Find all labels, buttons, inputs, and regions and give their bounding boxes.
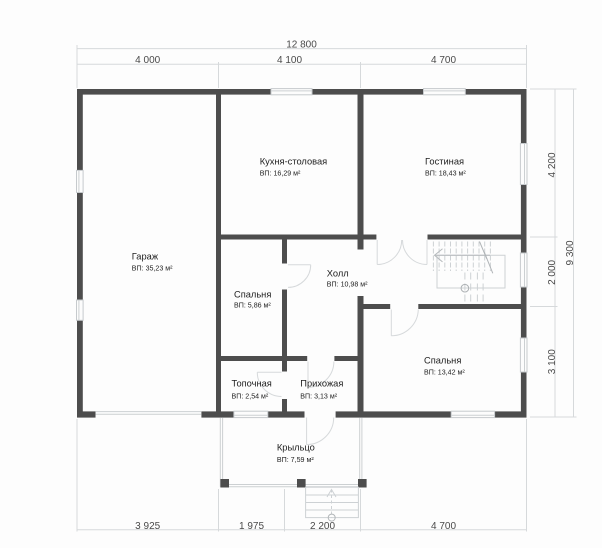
svg-text:1 975: 1 975 — [239, 521, 264, 532]
svg-text:ВП: 18,43 м²: ВП: 18,43 м² — [425, 170, 466, 178]
svg-text:3 100: 3 100 — [547, 349, 558, 374]
svg-text:Крыльцо: Крыльцо — [277, 442, 315, 452]
svg-text:4 100: 4 100 — [277, 55, 302, 66]
svg-text:ВП: 7,59 м²: ВП: 7,59 м² — [277, 456, 314, 464]
svg-text:Гараж: Гараж — [132, 251, 159, 261]
svg-text:4 200: 4 200 — [547, 152, 558, 177]
svg-text:ВП: 16,29 м²: ВП: 16,29 м² — [260, 170, 301, 178]
svg-text:ВП: 3,13 м²: ВП: 3,13 м² — [300, 392, 337, 400]
svg-text:ВП: 35,23 м²: ВП: 35,23 м² — [132, 265, 173, 273]
svg-text:Гостиная: Гостиная — [425, 157, 464, 167]
svg-text:ВП: 5,86 м²: ВП: 5,86 м² — [234, 301, 271, 309]
svg-text:ВП: 13,42 м²: ВП: 13,42 м² — [424, 368, 465, 376]
svg-text:Прихожая: Прихожая — [300, 379, 343, 389]
svg-text:Кухня-столовая: Кухня-столовая — [260, 157, 327, 167]
svg-text:Спальня: Спальня — [424, 355, 461, 365]
svg-text:Холл: Холл — [327, 269, 349, 279]
svg-text:4 700: 4 700 — [431, 55, 456, 66]
svg-text:3 925: 3 925 — [135, 521, 160, 532]
svg-text:12 800: 12 800 — [286, 39, 317, 50]
svg-text:Спальня: Спальня — [234, 290, 271, 300]
svg-text:4 700: 4 700 — [431, 521, 456, 532]
svg-text:ВП: 2,54 м²: ВП: 2,54 м² — [232, 392, 269, 400]
svg-text:Топочная: Топочная — [232, 379, 272, 389]
svg-text:9 300: 9 300 — [565, 240, 576, 265]
svg-text:ВП: 10,98 м²: ВП: 10,98 м² — [327, 281, 368, 289]
svg-text:2 000: 2 000 — [547, 259, 558, 284]
svg-text:4 000: 4 000 — [135, 55, 160, 66]
svg-text:2 200: 2 200 — [310, 521, 335, 532]
